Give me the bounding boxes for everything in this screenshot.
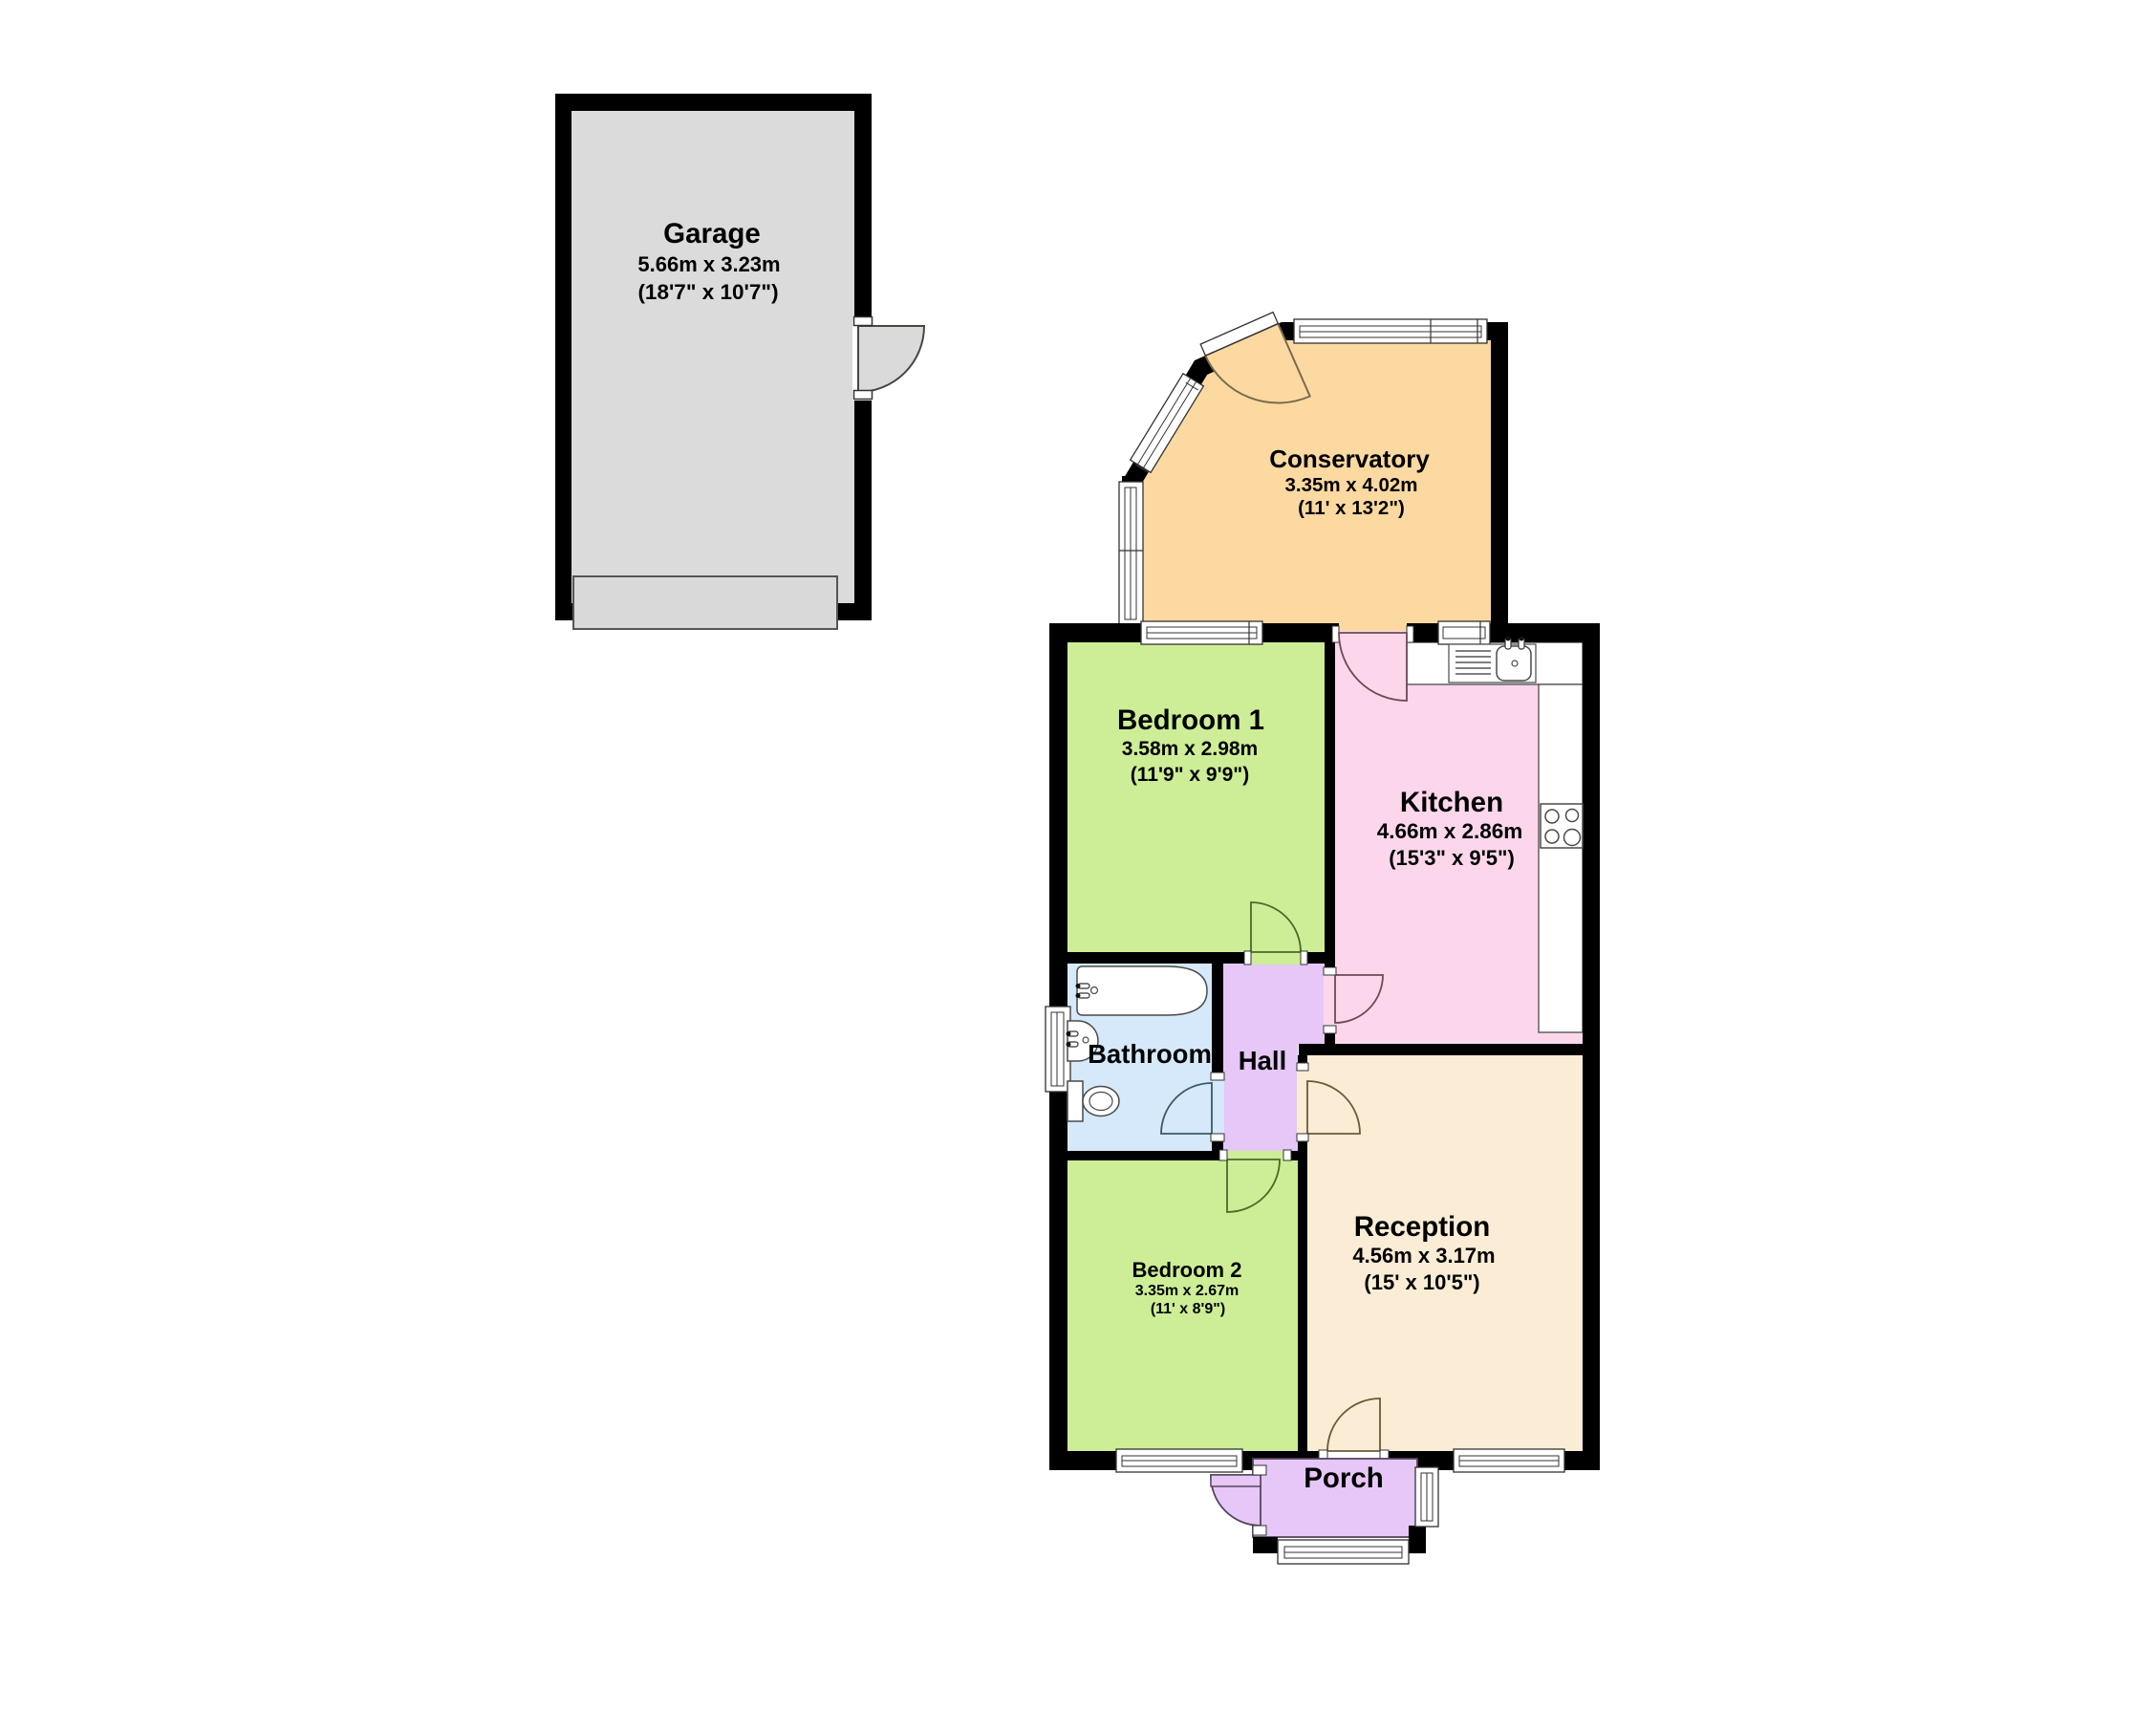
svg-text:4.66m x 2.86m: 4.66m x 2.86m <box>1377 819 1523 843</box>
svg-text:Conservatory: Conservatory <box>1269 444 1430 473</box>
svg-text:Garage: Garage <box>663 218 761 249</box>
svg-text:5.66m x 3.23m: 5.66m x 3.23m <box>637 252 780 276</box>
svg-text:Bedroom 1: Bedroom 1 <box>1117 704 1264 736</box>
svg-text:(11' x 8'9"): (11' x 8'9") <box>1151 1301 1225 1317</box>
svg-text:(15'3" x 9'5"): (15'3" x 9'5") <box>1389 846 1515 870</box>
svg-text:Kitchen: Kitchen <box>1400 787 1503 818</box>
svg-text:3.35m x 2.67m: 3.35m x 2.67m <box>1135 1283 1240 1299</box>
svg-text:(15' x 10'5"): (15' x 10'5") <box>1364 1270 1479 1294</box>
svg-text:3.35m x 4.02m: 3.35m x 4.02m <box>1284 474 1417 496</box>
svg-text:(11'9" x 9'9"): (11'9" x 9'9") <box>1131 764 1249 786</box>
svg-text:Hall: Hall <box>1239 1046 1286 1075</box>
svg-text:Reception: Reception <box>1354 1211 1491 1243</box>
svg-text:(18'7" x 10'7"): (18'7" x 10'7") <box>637 280 778 304</box>
svg-text:Bedroom 2: Bedroom 2 <box>1132 1258 1242 1282</box>
svg-text:3.58m x 2.98m: 3.58m x 2.98m <box>1122 738 1258 760</box>
svg-text:(11' x 13'2"): (11' x 13'2") <box>1298 497 1405 519</box>
svg-text:Bathroom: Bathroom <box>1088 1039 1212 1069</box>
svg-text:4.56m x 3.17m: 4.56m x 3.17m <box>1352 1244 1495 1268</box>
svg-text:Porch: Porch <box>1304 1463 1384 1494</box>
